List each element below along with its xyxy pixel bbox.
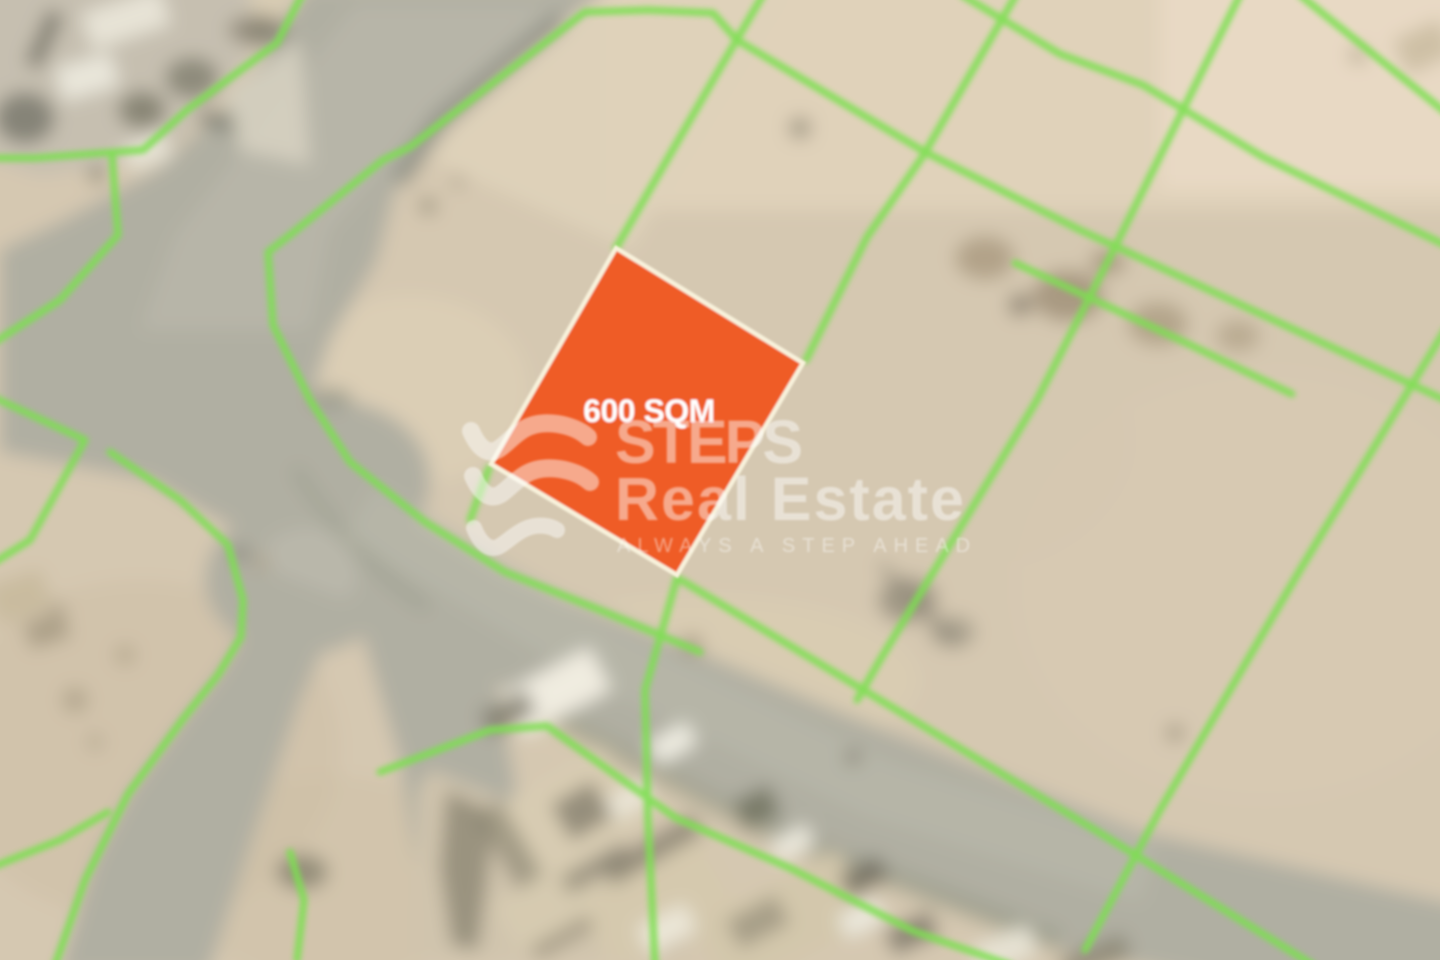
svg-text:ALWAYS A STEP AHEAD: ALWAYS A STEP AHEAD — [617, 535, 977, 557]
svg-text:Real Estate: Real Estate — [615, 465, 966, 533]
